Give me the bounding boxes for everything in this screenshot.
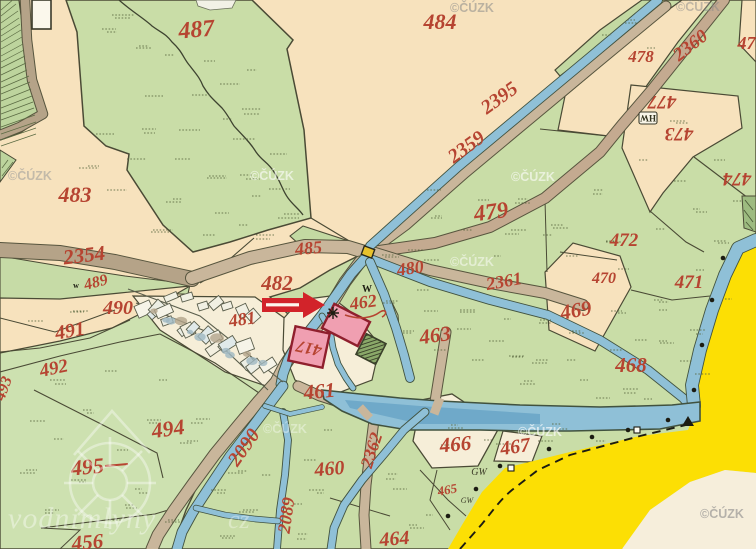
svg-text:482: 482 [260,271,293,295]
svg-text:GW: GW [461,496,475,505]
svg-text:W: W [362,284,372,295]
svg-text:461: 461 [302,378,336,405]
svg-text:471: 471 [674,272,704,293]
svg-text:463: 463 [417,321,453,349]
svg-text:483: 483 [58,182,92,207]
svg-text:490: 490 [102,297,133,319]
svg-text:477: 477 [646,91,677,112]
svg-text:481: 481 [226,307,257,331]
svg-text:485: 485 [293,237,323,259]
svg-text:vodnimlyny: vodnimlyny [8,502,156,535]
svg-text:cz: cz [228,505,250,534]
svg-text:478: 478 [627,47,654,66]
svg-text:©ČÚZK: ©ČÚZK [8,168,52,183]
svg-text:494: 494 [149,414,186,443]
svg-text:©ČÚZK: ©ČÚZK [450,254,494,269]
svg-text:©ČÚZK: ©ČÚZK [518,424,562,439]
svg-text:473: 473 [665,123,695,144]
svg-text:©ČÚZK: ©ČÚZK [700,506,744,521]
svg-text:©ČÚZK: ©ČÚZK [511,169,555,184]
svg-text:479: 479 [471,197,510,227]
svg-text:474: 474 [723,168,753,189]
svg-text:470: 470 [591,270,616,287]
svg-text:GW: GW [471,467,488,478]
svg-text:HW: HW [640,113,656,123]
svg-text:©ČÚZK: ©ČÚZK [450,0,494,15]
svg-text:©ČÚZK: ©ČÚZK [676,0,720,14]
svg-text:480: 480 [394,256,425,280]
svg-text:w: w [73,281,79,290]
svg-text:487: 487 [176,15,216,44]
svg-text:468: 468 [614,353,647,377]
svg-text:©ČÚZK: ©ČÚZK [263,421,307,436]
svg-text:460: 460 [313,457,346,482]
svg-text:464: 464 [378,527,411,549]
svg-text:©ČÚZK: ©ČÚZK [250,168,294,183]
svg-text:466: 466 [438,431,473,458]
svg-text:472: 472 [609,230,639,251]
svg-text:475: 475 [737,33,756,53]
